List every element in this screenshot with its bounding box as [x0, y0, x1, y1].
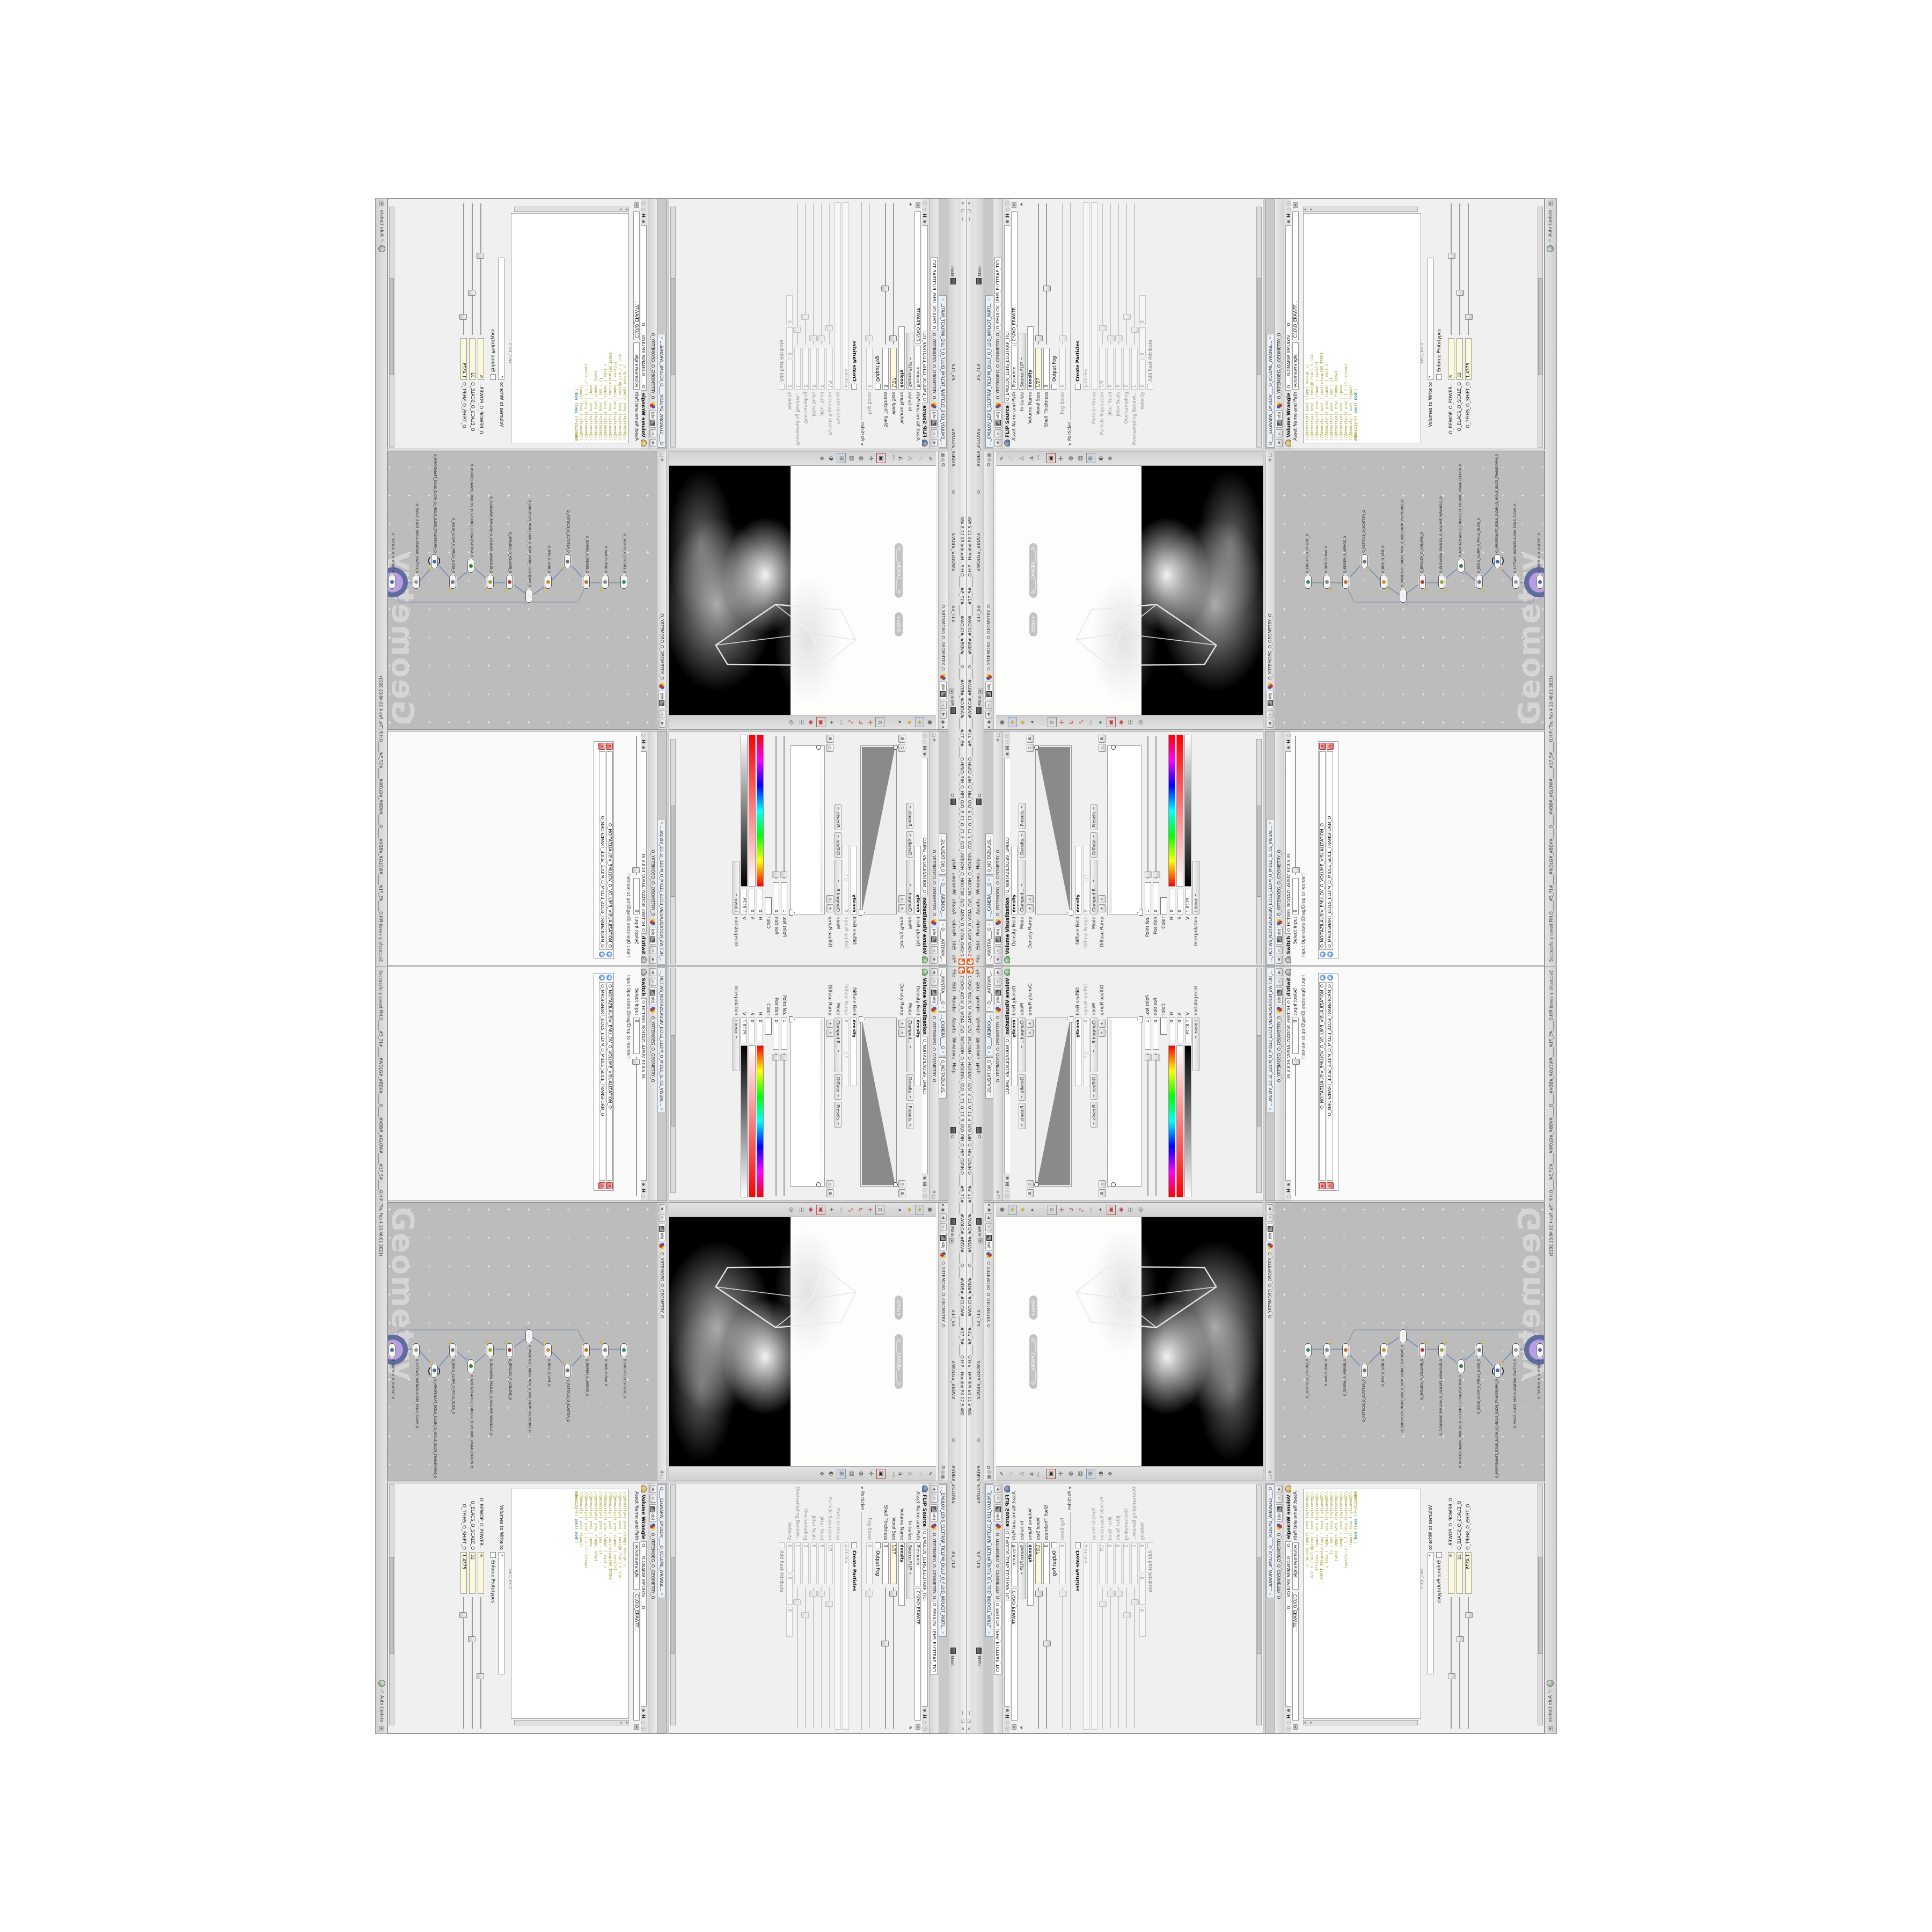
point-no-slider[interactable]: [781, 735, 788, 880]
breadcrumb[interactable]: O_YRTEMOEG_O_GEOMETRY_O: [932, 1016, 936, 1082]
volumes-input[interactable]: *: [1428, 258, 1434, 380]
interpolation-dropdown[interactable]: Linear: [1192, 1018, 1199, 1071]
fluid-tool-icon[interactable]: ✦: [1097, 718, 1105, 727]
voxel-size-input[interactable]: 1/27: [891, 348, 897, 390]
scale-slider[interactable]: [1457, 202, 1463, 336]
image-plane-icon[interactable]: ▤: [847, 1469, 855, 1479]
close-icon[interactable]: ✕: [987, 1631, 991, 1634]
network-node[interactable]: O_EMULOV_O_VOLUME_O: [1419, 1343, 1426, 1357]
camera-pill[interactable]: O_____CAMERA_____O: [1029, 1334, 1037, 1389]
diffuse-mode-dropdown[interactable]: Clamped R...: [1091, 1018, 1097, 1072]
translate-handle-icon[interactable]: ✛: [866, 1205, 874, 1214]
horizontal-scrollbar[interactable]: [1256, 207, 1262, 448]
close-icon[interactable]: ✕: [941, 1631, 945, 1634]
point-no-input[interactable]: 1: [781, 1018, 788, 1050]
network-node[interactable]: O_ECILS_ELDIM_O_MIDLE_SLICE_O: [449, 1343, 456, 1357]
diffuse-range-max[interactable]: 1: [1083, 845, 1089, 879]
oversampling-bandwidth-slider[interactable]: [795, 202, 801, 346]
breadcrumb[interactable]: O_YRTEMOEG_O_GEOMETRY_O: [986, 1261, 991, 1327]
shift-slider[interactable]: [461, 1596, 467, 1730]
breadcrumb[interactable]: O_YRTEMOEG_O_GEOMETRY_O: [932, 1533, 936, 1599]
velocity-y-input[interactable]: 0: [787, 1575, 793, 1605]
gear-icon[interactable]: ✱: [641, 1183, 646, 1187]
shift-input[interactable]: 1.4375: [461, 338, 467, 380]
remove-icon[interactable]: ✕: [606, 743, 613, 750]
pyramid-icon[interactable]: △: [1018, 1469, 1026, 1479]
back-icon[interactable]: ◂: [1028, 718, 1036, 727]
desktop-icon-o[interactable]: O: [976, 794, 982, 805]
tab-switch[interactable]: ..._HCTIWS_NOITAZILAUSIV_ECILS_ELDIM_O_M…: [658, 819, 665, 964]
network-node[interactable]: O_ELGNARW_EMULOV_O_VOLUME_WRANGLE_O: [1438, 1343, 1445, 1357]
ramp-point-marker[interactable]: [789, 1016, 795, 1022]
radial-menu-icon[interactable]: ◉: [941, 720, 946, 724]
render-region-icon[interactable]: ▣: [816, 718, 825, 728]
desktop-tab-main[interactable]: Main◂▸: [949, 689, 956, 714]
cube-view-icon[interactable]: ▦: [941, 453, 946, 457]
forward-arrow-icon[interactable]: ▶: [931, 978, 938, 986]
ramp-delete-point-button[interactable]: ✕: [1027, 1029, 1034, 1037]
remove-icon[interactable]: ✕: [1327, 1182, 1334, 1189]
snapshot-icon[interactable]: ✪: [941, 463, 946, 467]
jitter-seed-input[interactable]: 0: [819, 1542, 825, 1584]
select-arrow-icon[interactable]: ➤: [886, 718, 894, 727]
node-path-field[interactable]: O_EMULOV_LEHS_ELCITRAP_TICI: [931, 1601, 938, 1675]
position-slider[interactable]: [773, 1052, 780, 1197]
diffuse-group-dropdown[interactable]: Diffuse: [835, 1074, 841, 1100]
ramp-point-marker[interactable]: [789, 910, 795, 916]
network-node[interactable]: O_HCTIWS_NOITAZILAUSIV_ECILS_ELDIM_O: [1512, 1343, 1519, 1357]
ramp-add-point-button[interactable]: +: [898, 904, 905, 912]
presets-dropdown[interactable]: Presets: [1091, 1102, 1097, 1128]
node-path-field[interactable]: O_EMULOV_LEHS_ELCITRAP_TICI: [994, 257, 1001, 331]
select-arrow-icon[interactable]: ➤: [886, 1205, 894, 1214]
mode-dropdown[interactable]: Clamped...: [1019, 1018, 1026, 1072]
power-input[interactable]: 6: [478, 338, 485, 380]
power-input[interactable]: 6: [478, 1552, 485, 1594]
gear-icon[interactable]: ✱: [641, 220, 646, 224]
remove-icon[interactable]: ✕: [1327, 743, 1334, 750]
network-node[interactable]: O_EGREM_O_MERGE_O: [583, 575, 590, 589]
point-no-slider[interactable]: [1145, 1052, 1151, 1197]
close-icon[interactable]: ✕: [660, 1108, 663, 1110]
hue-input[interactable]: 0: [757, 1018, 764, 1043]
viewport-render[interactable]: Ortho ▾ O_____CAMERA_____O: [669, 465, 936, 715]
density-field-input[interactable]: density: [1011, 1018, 1018, 1086]
forward-arrow-icon[interactable]: ▶: [994, 1495, 1001, 1503]
ramp-point-marker[interactable]: [1067, 910, 1073, 916]
shell-thickness-slider[interactable]: [883, 202, 889, 346]
shelf-tab-o[interactable]: O: [951, 1438, 956, 1441]
panel-icon[interactable]: ▢: [996, 733, 1000, 737]
spinner-icon[interactable]: ◂▸: [634, 1724, 639, 1730]
back-arrow-icon[interactable]: ◀: [649, 1485, 656, 1493]
ramp-delete-point-button[interactable]: ✕: [898, 1029, 905, 1037]
shell-thickness-slider[interactable]: [883, 1586, 889, 1730]
close-icon[interactable]: ✕: [1269, 336, 1272, 339]
value-input[interactable]: 1.8125: [1185, 889, 1191, 914]
menu-file[interactable]: File: [951, 969, 956, 977]
shift-slider[interactable]: [461, 202, 467, 336]
ramp-delete-point-button[interactable]: ✕: [898, 895, 905, 903]
tab-volume-wrangle[interactable]: O____ELGNARW_EMULOV____O_VOLUME_WRANGL..…: [658, 1484, 665, 1598]
spinner-icon[interactable]: ◂▸: [1293, 202, 1298, 208]
lay-ball-icon[interactable]: ●: [998, 1205, 1006, 1214]
volume-name-input[interactable]: density: [1027, 326, 1034, 390]
spinner-icon[interactable]: ◂▸: [379, 201, 384, 206]
pencil-icon[interactable]: ✎: [926, 1469, 934, 1479]
menu-help[interactable]: Help: [976, 1063, 981, 1074]
particle-separation-input[interactable]: 1/3: [827, 348, 833, 390]
network-node[interactable]: O_EMULOV_O_VOLUME_O: [1419, 575, 1426, 589]
back-arrow-icon[interactable]: ◀: [940, 711, 947, 719]
fluid-tool-icon[interactable]: ✦: [827, 718, 835, 727]
back-icon[interactable]: ◂: [1028, 1205, 1036, 1214]
diffuse-range-max[interactable]: 1: [843, 845, 850, 879]
grid-view-icon[interactable]: ⊞: [1086, 1469, 1095, 1479]
forward-arrow-icon[interactable]: ▶: [649, 1495, 656, 1503]
close-icon[interactable]: ✕: [660, 822, 663, 824]
network-node-current[interactable]: O_TUPTUO_O_OUTPUT_O: [389, 575, 396, 589]
lay-wedge-icon[interactable]: ◆: [1019, 1205, 1027, 1214]
ramp-add-point-button[interactable]: +: [1027, 1020, 1034, 1028]
ramp-expand-icon[interactable]: ⊞: [1027, 1189, 1034, 1197]
fog-boost-input[interactable]: 0: [1059, 348, 1066, 390]
mode-dropdown[interactable]: Clamped...: [906, 1018, 913, 1072]
volume-name-input[interactable]: density: [899, 326, 905, 390]
close-icon[interactable]: ✕: [987, 879, 991, 881]
context-chip[interactable]: obj: [931, 410, 938, 428]
point-no-input[interactable]: 1: [1145, 1018, 1151, 1050]
shift-input[interactable]: 1.4375: [1465, 338, 1472, 380]
asset-path-input[interactable]: C:\O\O_ERAWTF...: [1292, 1592, 1299, 1721]
ramp-point-handle[interactable]: [816, 1182, 821, 1187]
list-item[interactable]: ◀O_NOITAZILAUSIV_EMULOV_O_VOLUME_VISUALI…: [606, 742, 613, 958]
input-operator-field[interactable]: O_NOITAZILAUSIV_EMULOV_O_VOLUME_VISUALIZ…: [1319, 982, 1326, 1181]
list-item[interactable]: ◀O_MROFSNART_ECILS_ELDIM_O_MIDLE_SLICE_T…: [598, 742, 606, 958]
scale-handle-icon[interactable]: ⤡: [1078, 1205, 1086, 1214]
network-node[interactable]: O_SNOGYLOP_MORF_BDV_O_VDB_FROM_POLYGONS_…: [1400, 1329, 1407, 1343]
density-ramp-widget[interactable]: [860, 1018, 897, 1187]
context-chip[interactable]: obj: [649, 987, 656, 1005]
menu-render[interactable]: Render: [951, 996, 956, 1013]
back-arrow-icon[interactable]: ◀: [994, 956, 1001, 964]
breadcrumb[interactable]: O_YRTEMOEG_O_GEOMETRY_O: [996, 333, 1000, 399]
particle-separation-slider[interactable]: [827, 202, 833, 346]
input-operator-field[interactable]: O_MROFSNART_ECILS_ELDIM_O_MIDLE_SLICE_TR…: [599, 751, 605, 950]
diffuse-ramp-widget[interactable]: [1107, 745, 1141, 914]
code-scrollbar[interactable]: ▲▼: [514, 207, 629, 212]
cube-view-icon[interactable]: ▦: [986, 1475, 991, 1479]
network-node[interactable]: O_MROFSNART_ECILS_ELDIM_O_MIDLE_SLICE_TR…: [431, 554, 438, 568]
velocity-x-input[interactable]: 0: [787, 360, 793, 390]
back-arrow-icon[interactable]: ◀: [985, 711, 992, 719]
translate-handle-icon[interactable]: ✛: [1058, 718, 1066, 727]
tab-volume-wrangle[interactable]: O____ELGNARW_EMULOV____O_VOLUME_WRANGL..…: [1267, 1484, 1274, 1598]
shade-icon[interactable]: ◮: [897, 1469, 905, 1479]
section-collapse-icon[interactable]: ▼: [860, 443, 864, 445]
breadcrumb[interactable]: O_YRTEMOEG_O_GEOMETRY_O: [932, 333, 936, 399]
ramp-collapse-icon[interactable]: △: [1099, 1180, 1106, 1188]
remove-icon[interactable]: ✕: [1319, 743, 1326, 750]
gear-icon[interactable]: ✱: [922, 752, 927, 756]
grid-view-icon[interactable]: ⊞: [1086, 453, 1095, 464]
jitter-scale-input[interactable]: 0: [1115, 348, 1122, 390]
close-icon[interactable]: ✕: [660, 336, 663, 339]
ramp-point-handle[interactable]: [893, 1182, 898, 1187]
menu-help[interactable]: Help: [976, 858, 981, 869]
input-operator-field[interactable]: O_NOITAZILAUSIV_EMULOV_O_VOLUME_VISUALIZ…: [1319, 751, 1326, 950]
density-group-dropdown[interactable]: Density: [906, 1074, 913, 1101]
breadcrumb[interactable]: O_YRTEMOEG_O_GEOMETRY_O: [986, 604, 991, 670]
volume-name-input[interactable]: density: [1027, 1542, 1034, 1606]
volumes-input[interactable]: *: [499, 1552, 505, 1674]
panel-icon[interactable]: ▢: [932, 1195, 936, 1199]
tab-flip-source[interactable]: ..._EMULOV_LEHS_ELCITRAP_TICLPMI_DIULF_O…: [985, 295, 993, 448]
hue-input[interactable]: 0: [757, 889, 764, 914]
network-node[interactable]: O_NOITAZILAUSIV_EMULOV_O_VOLUME_VISUALIZ…: [1458, 559, 1465, 573]
breadcrumb[interactable]: O_YRTEMOEG_O_GEOMETRY_O: [941, 1261, 946, 1327]
output-fog-checkbox[interactable]: [1051, 1542, 1057, 1548]
forward-arrow-icon[interactable]: ▶: [649, 429, 656, 437]
particle-group-input[interactable]: [1091, 202, 1097, 390]
tab-volume-wrangle[interactable]: O____ELGNARW_EMULOV____O_VOLUME_WRANGL..…: [658, 334, 665, 448]
scale-slider[interactable]: [470, 202, 476, 336]
spinner-icon[interactable]: ◂▸: [379, 1726, 384, 1731]
gear-icon[interactable]: ✱: [1005, 220, 1010, 224]
ramp-point-marker[interactable]: [1067, 1016, 1073, 1022]
jitter-seed-slider[interactable]: [1107, 202, 1114, 346]
options-icon[interactable]: ✥: [817, 1469, 825, 1479]
ramp-collapse-icon[interactable]: △: [826, 1180, 833, 1188]
ramp-delete-point-button[interactable]: ✕: [1099, 1029, 1106, 1037]
grid-view-icon[interactable]: ⊞: [837, 453, 846, 464]
particle-separation-input[interactable]: 1/3: [827, 1542, 833, 1584]
horizontal-scrollbar[interactable]: [389, 207, 394, 448]
fog-boost-slider[interactable]: [867, 1586, 873, 1730]
particle-separation-input[interactable]: 1/3: [1099, 1542, 1106, 1584]
velocity-z-input[interactable]: 0: [787, 295, 793, 325]
translate-handle-icon[interactable]: ✛: [1058, 1205, 1066, 1214]
shell-thickness-input[interactable]: 3: [1043, 1542, 1050, 1584]
close-icon[interactable]: ✕: [1269, 1108, 1272, 1110]
input-operator-field[interactable]: O_MROFSNART_ECILS_ELDIM_O_MIDLE_SLICE_TR…: [599, 982, 605, 1181]
scale-input[interactable]: 32: [1457, 1552, 1463, 1594]
info-icon[interactable]: ⓘ: [921, 734, 927, 738]
fan-icon[interactable]: ✣: [867, 1469, 875, 1479]
scale-input[interactable]: 32: [470, 338, 476, 380]
view-d-icon[interactable]: D: [1048, 1205, 1057, 1215]
add-rest-checkbox[interactable]: [779, 1542, 785, 1548]
jitter-scale-slider[interactable]: [1115, 202, 1122, 346]
ramp-expand-icon[interactable]: ⊞: [1099, 735, 1106, 743]
menu-file[interactable]: File: [976, 969, 981, 977]
hook-icon[interactable]: ⌒: [887, 1469, 895, 1479]
breadcrumb[interactable]: O_YRTEMOEG_O_GEOMETRY_O: [996, 1016, 1000, 1082]
lasso-icon[interactable]: ◉: [807, 1205, 815, 1214]
density-ramp-widget[interactable]: [860, 745, 897, 914]
network-node[interactable]: O_EREHPS_O_SPHERE_O: [620, 1343, 627, 1357]
menu-help[interactable]: Help: [951, 1063, 956, 1074]
volumes-input[interactable]: *: [499, 258, 505, 380]
network-node[interactable]: O_HCTIWS_NOITAZILAUSIV_ECILS_ELDIM_O: [1512, 575, 1519, 589]
spinner-icon[interactable]: ◂▸: [634, 202, 639, 208]
refresh-icon[interactable]: ↺: [379, 239, 385, 243]
diffuse-range-max[interactable]: 1: [1083, 1053, 1089, 1087]
node-path-field[interactable]: O_EMULOV_LEHS_ELCITRAP_TICI: [931, 257, 938, 331]
select-input-field[interactable]: 0: [1292, 878, 1299, 914]
network-node[interactable]: O_ECILS_ELDIM_O_MIDLE_SLICE_O: [1476, 575, 1483, 589]
spinner-icon[interactable]: ◂▸: [1548, 1726, 1553, 1731]
ramp-point-marker[interactable]: [1137, 1016, 1143, 1022]
hook-icon[interactable]: ⌒: [1037, 1469, 1045, 1479]
vex-snippet-editor[interactable]: //@density=( pow( clamp( cos(@O_EL //@de…: [1303, 1489, 1421, 1719]
gear-icon[interactable]: ✱: [922, 1709, 927, 1713]
network-node[interactable]: O_MROFSNART_ECILS_ELDIM_O_MIDLE_SLICE_TR…: [1494, 554, 1501, 568]
network-node[interactable]: O_BDV_O_VDB_O: [545, 575, 552, 589]
oversampling-slider[interactable]: [803, 202, 809, 346]
gear-icon[interactable]: ✱: [1286, 220, 1291, 224]
oversampling-bandwidth-input[interactable]: 1: [1131, 1542, 1138, 1584]
asset-name-input[interactable]: flipsource: [915, 1542, 921, 1586]
lay-wedge-icon[interactable]: ◆: [1019, 718, 1027, 727]
oversampling-input[interactable]: 2: [803, 1542, 809, 1584]
network-node[interactable]: O_EREHPS_O_SPHERE_O: [1305, 575, 1312, 589]
input-operator-field[interactable]: O_MROFSNART_ECILS_ELDIM_O_MIDLE_SLICE_TR…: [1327, 982, 1333, 1181]
jitter-scale-input[interactable]: 0: [811, 1542, 817, 1584]
shelf-tab-wolg-bdv[interactable]: #WOLG#_#BDV#: [976, 1360, 981, 1400]
forward-arrow-icon[interactable]: ▶: [985, 1223, 992, 1231]
ramp-add-point-button[interactable]: +: [898, 1020, 905, 1028]
network-node[interactable]: O_ELGNARW_EMULOV_O_VOLUME_WRANGLE_O: [1438, 575, 1445, 589]
network-node[interactable]: O_ECILS_ELDIM_O_MIDLE_SLICE_O: [449, 575, 456, 589]
network-node[interactable]: O_XOB_O_BOX_O: [1323, 575, 1330, 589]
barrel-icon[interactable]: ◍: [857, 454, 865, 463]
network-node[interactable]: O_XOB_O_BOX_O: [1323, 1343, 1330, 1357]
network-node[interactable]: O_EGREM_O_MERGE_O: [583, 1343, 590, 1357]
image-plane-icon[interactable]: ▤: [847, 454, 855, 463]
refresh-icon[interactable]: ↺: [1548, 239, 1553, 243]
scale-handle-icon[interactable]: ⤡: [846, 1205, 854, 1214]
menu-windows[interactable]: Windows: [951, 1037, 956, 1059]
particle-group-input[interactable]: [1091, 1542, 1097, 1730]
forward-arrow-icon[interactable]: ▶: [649, 978, 656, 986]
back-arrow-icon[interactable]: ◀: [1267, 1204, 1274, 1212]
position-slider[interactable]: [1153, 735, 1159, 880]
jitter-scale-slider[interactable]: [1115, 1586, 1122, 1730]
rotate-handle-icon[interactable]: ↻: [856, 718, 864, 727]
breadcrumb[interactable]: O_YRTEMOEG_O_GEOMETRY_O: [650, 1016, 655, 1082]
voxel-size-input[interactable]: 1/27: [1035, 348, 1042, 390]
flag-icon[interactable]: ⚑: [1020, 202, 1024, 206]
spinner-icon[interactable]: ◂▸: [949, 689, 954, 694]
breadcrumb[interactable]: O_YRTEMOEG_O_GEOMETRY_O: [1268, 613, 1272, 679]
breadcrumb[interactable]: O_YRTEMOEG_O_GEOMETRY_O: [1277, 1016, 1282, 1082]
network-node[interactable]: O_EREHPS_O_SPHERE_O: [1305, 1343, 1312, 1357]
close-icon[interactable]: ✕: [1269, 1593, 1272, 1596]
radial-menu-icon[interactable]: ◉: [986, 720, 991, 724]
network-node[interactable]: O_BDV_O_VDB_O: [545, 1343, 552, 1357]
oversampling-bandwidth-slider[interactable]: [1131, 202, 1138, 346]
network-canvas[interactable]: + + + + + + + + + + + + + + + + + + + + …: [388, 1203, 657, 1481]
asset-name-input[interactable]: volumewrangle: [1292, 1542, 1299, 1590]
rotate-handle-icon[interactable]: ↻: [1068, 1205, 1076, 1214]
oversampling-bandwidth-input[interactable]: 1: [795, 348, 801, 390]
particle-separation-slider[interactable]: [827, 1586, 833, 1730]
create-particles-checkbox[interactable]: [1075, 1542, 1081, 1548]
oversampling-bandwidth-slider[interactable]: [1131, 1586, 1138, 1730]
density-group-dropdown[interactable]: Density: [1019, 1074, 1026, 1101]
value-input[interactable]: 1.8125: [741, 1018, 748, 1043]
interpolation-dropdown[interactable]: Linear: [733, 861, 740, 914]
refresh-icon[interactable]: ↺: [1548, 1689, 1553, 1693]
section-collapse-icon[interactable]: ▼: [1069, 1487, 1072, 1489]
section-label[interactable]: Particles: [859, 422, 865, 441]
horizontal-scrollbar[interactable]: [1538, 207, 1543, 448]
viewport-render[interactable]: Ortho ▾ O_____CAMERA_____O: [669, 1217, 936, 1467]
search-icon[interactable]: ◌: [922, 208, 927, 211]
velocity-y-input[interactable]: 0: [787, 327, 793, 357]
shelf-tab-vdb-glow[interactable]: #VDB#_#GLOW#: [951, 1465, 956, 1504]
fog-boost-slider[interactable]: [1059, 202, 1066, 346]
horizontal-scrollbar[interactable]: [670, 1484, 676, 1725]
asset-path-input[interactable]: C:\O\O_ERAWTF...: [915, 211, 921, 343]
tab-switch[interactable]: ..._HCTIWS_NOITAZILAUSIV_ECILS_ELDIM_O_M…: [1267, 968, 1274, 1113]
network-node[interactable]: O_HCTIWS_NOITAZILAUSIV_ECILS_ELDIM_O: [413, 1343, 420, 1357]
diffuse-field-input[interactable]: density: [851, 1018, 858, 1086]
camera-lock-icon[interactable]: ◐: [827, 1469, 835, 1479]
render-region-icon[interactable]: ▣: [1107, 1205, 1116, 1215]
shade-icon[interactable]: ◮: [1027, 454, 1035, 463]
forward-arrow-icon[interactable]: ▶: [931, 946, 938, 954]
back-arrow-icon[interactable]: ◀: [1276, 1485, 1283, 1493]
spinner-icon[interactable]: ◂▸: [1012, 202, 1016, 208]
back-arrow-icon[interactable]: ◀: [649, 968, 656, 976]
tab-switch[interactable]: ..._HCTIWS_NOITAZILAUSIV_ECILS_ELDIM_O_M…: [1267, 819, 1274, 964]
bullseye-icon[interactable]: ◎: [986, 1470, 991, 1474]
close-icon[interactable]: ✕: [987, 298, 991, 301]
breadcrumb[interactable]: O_YRTEMOEG_O_GEOMETRY_O: [660, 613, 664, 679]
back-arrow-icon[interactable]: ◀: [985, 1213, 992, 1221]
presets-dropdown[interactable]: Presets: [1019, 1103, 1026, 1129]
asset-name-input[interactable]: flipsource: [915, 346, 921, 390]
ramp-expand-icon[interactable]: ⊞: [1099, 1189, 1106, 1197]
menu-assets[interactable]: Assets: [976, 899, 981, 914]
search-icon[interactable]: ◌: [641, 208, 646, 211]
close-icon[interactable]: ✕: [941, 298, 945, 301]
oversampling-slider[interactable]: [1123, 202, 1130, 346]
network-node[interactable]: O_XOB_O_BOX_O: [602, 575, 609, 589]
search-icon[interactable]: ◌: [641, 1721, 646, 1724]
info-icon[interactable]: ⓘ: [921, 1194, 927, 1198]
menu-edit[interactable]: Edit: [951, 982, 956, 991]
network-node[interactable]: O_MROFSNART_ECILS_ELDIM_O_MIDLE_SLICE_TR…: [1494, 1364, 1501, 1378]
breadcrumb[interactable]: O_YRTEMOEG_O_GEOMETRY_O: [650, 850, 655, 916]
forward-arrow-icon[interactable]: ▶: [1276, 978, 1283, 986]
oversampling-input[interactable]: 2: [803, 348, 809, 390]
desktop-tab-main[interactable]: Main◂▸: [949, 1218, 956, 1243]
ramp-expand-icon[interactable]: ⊞: [898, 735, 905, 743]
menu-assets[interactable]: Assets: [976, 1018, 981, 1033]
spinner-icon[interactable]: ◂▸: [916, 202, 920, 208]
diffuse-range-min[interactable]: 0: [843, 881, 850, 914]
ramp-delete-point-button[interactable]: ✕: [826, 1029, 833, 1037]
density-ramp-widget[interactable]: [1035, 745, 1072, 914]
reorder-icon[interactable]: ◀: [599, 975, 605, 980]
ramp-collapse-icon[interactable]: △: [1099, 744, 1106, 752]
select-input-slider[interactable]: [634, 1056, 640, 1197]
saturation-input[interactable]: 0: [749, 1018, 756, 1043]
select-input-slider[interactable]: [1292, 1056, 1299, 1197]
